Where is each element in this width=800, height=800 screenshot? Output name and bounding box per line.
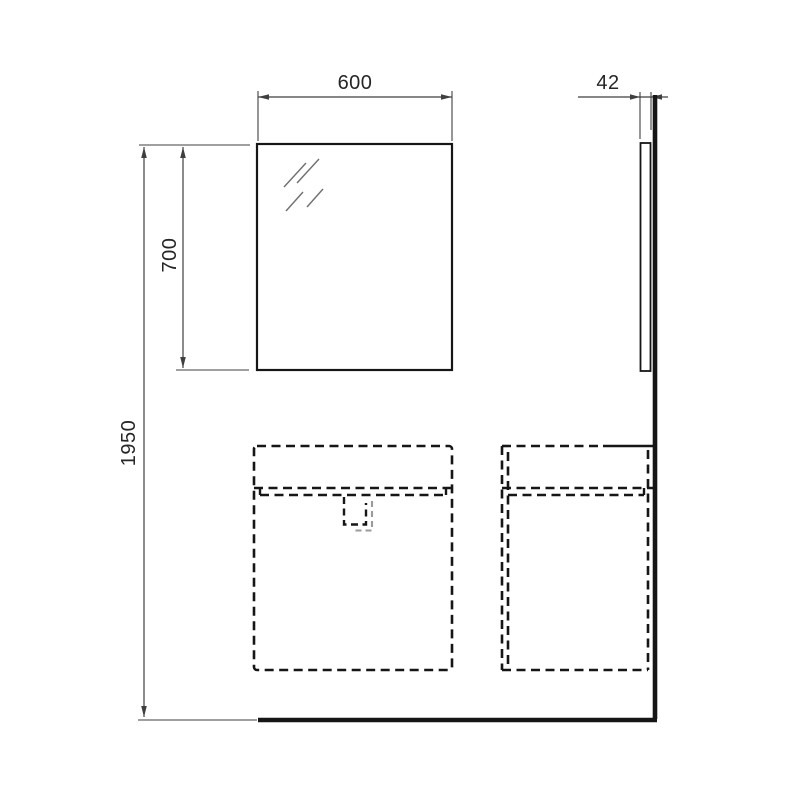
dimension-600 — [258, 91, 452, 141]
arrowhead-up-icon — [180, 147, 186, 158]
dimension-1950 — [138, 147, 257, 720]
arrowhead-left-icon — [258, 94, 269, 100]
drain-front — [344, 497, 366, 525]
arrowhead-down-icon — [180, 357, 186, 368]
mirror-outline — [257, 144, 452, 370]
dimension-label-mirror-height: 700 — [159, 225, 181, 285]
drain-shadow — [353, 501, 372, 531]
glass-reflection-icon — [284, 159, 323, 211]
drain-outline — [344, 497, 372, 531]
technical-drawing-canvas: 600 42 700 1950 — [0, 0, 800, 800]
dimension-700 — [139, 145, 250, 370]
arrowhead-down-icon — [141, 706, 147, 717]
right-vanity-cabinet — [502, 446, 655, 670]
arrowhead-up-icon — [141, 147, 147, 158]
dimension-label-mirror-width: 600 — [315, 72, 395, 94]
mirror-side-profile — [641, 143, 651, 371]
cabinet-outline — [254, 446, 452, 670]
dimension-label-side-depth: 42 — [583, 72, 633, 94]
dimension-label-total-height: 1950 — [118, 403, 140, 483]
drawing-linework — [0, 0, 800, 800]
mirror-front-view — [257, 144, 452, 370]
left-vanity-cabinet — [254, 446, 452, 670]
arrowhead-right-icon — [630, 94, 640, 100]
arrowhead-right-icon — [441, 94, 452, 100]
